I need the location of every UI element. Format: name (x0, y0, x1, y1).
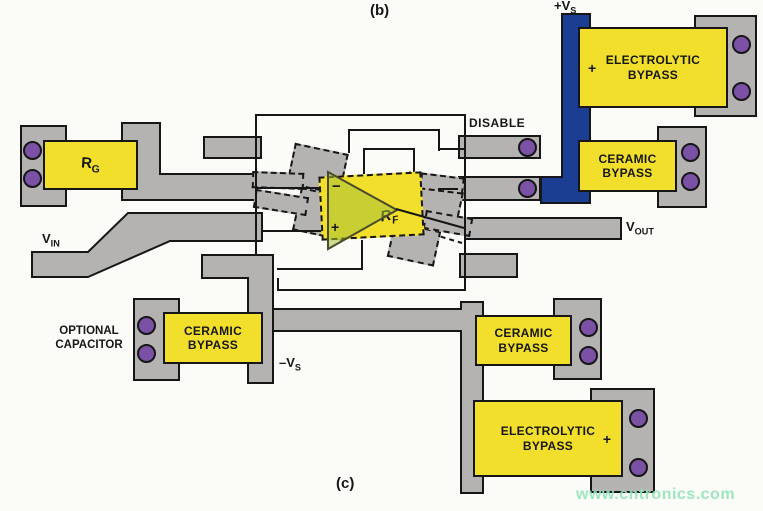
neg-supply-label: –VS (279, 355, 301, 373)
electrolytic-bypass-bottom-label: ELECTROLYTICBYPASS (501, 424, 596, 453)
pad-hole (518, 179, 537, 198)
wire-plus-drop (361, 240, 363, 270)
wire-bottom (277, 289, 464, 291)
vin-trace (32, 213, 262, 277)
wire-disable-b-top (363, 148, 415, 150)
wire-pad2-link (438, 188, 458, 190)
panel-label-b: (b) (370, 2, 389, 19)
electrolytic-bypass-top: + ELECTROLYTICBYPASS (578, 27, 728, 108)
vout-trace (464, 217, 622, 240)
pad-hole (137, 316, 156, 335)
panel-label-c: (c) (336, 475, 354, 492)
wire-top (255, 114, 466, 116)
rg-resistor: RG (43, 140, 138, 190)
electrolytic-bypass-top-label: ELECTROLYTICBYPASS (606, 53, 701, 82)
neg-supply-bus-trace (273, 302, 483, 493)
pad-hole (579, 318, 598, 337)
ceramic-bypass-right: CERAMICBYPASS (475, 315, 572, 366)
wire-bottom-left-drop (277, 278, 279, 291)
ceramic-bypass-top-label: CERAMICBYPASS (598, 152, 656, 181)
rg-label: RG (80, 154, 100, 175)
pos-supply-label: +VS (554, 0, 576, 16)
pad-hole (681, 172, 700, 191)
wire-disable-a-top (348, 129, 440, 131)
ceramic-bypass-top: CERAMICBYPASS (578, 140, 677, 192)
wire-disable-a-left (348, 129, 350, 153)
pcb-layout-diagram: RF − + RG + ELECTROLYTICBYPASS CERAMICBY… (0, 0, 763, 511)
pad-hole (629, 409, 648, 428)
polarity-plus: + (588, 60, 596, 76)
pad-hole (732, 35, 751, 54)
wire-plus-return (277, 268, 363, 270)
electrolytic-bypass-bottom: ELECTROLYTICBYPASS + (473, 400, 623, 477)
disable-label: DISABLE (469, 116, 525, 130)
rg-output-trace (122, 123, 256, 200)
stub-pad-below-vout (459, 253, 518, 278)
pad-hole (732, 82, 751, 101)
ceramic-bypass-left-label: CERAMICBYPASS (184, 324, 242, 353)
pad-hole (579, 346, 598, 365)
wire-right (464, 114, 466, 291)
polarity-plus: + (603, 431, 611, 447)
pad-hole (681, 143, 700, 162)
watermark: www.cntronics.com (576, 486, 735, 504)
ceramic-bypass-right-label: CERAMICBYPASS (494, 326, 552, 355)
vout-label: VOUT (626, 219, 654, 237)
pad-hole (23, 141, 42, 160)
opamp-plus-sign: + (331, 219, 339, 235)
optional-capacitor-label: OPTIONALCAPACITOR (46, 325, 132, 353)
opamp-minus-sign: − (332, 178, 341, 195)
pad-hole (518, 138, 537, 157)
vin-label: VIN (42, 231, 60, 249)
pad-hole (629, 458, 648, 477)
wire-left (255, 114, 257, 256)
pad-hole (23, 169, 42, 188)
ceramic-bypass-left: CERAMICBYPASS (163, 312, 263, 364)
rf-label: RF (379, 206, 399, 229)
wire-disable-b-left (363, 148, 365, 174)
pad-hole (137, 344, 156, 363)
wire-disable-link (440, 148, 464, 150)
stub-pad-upper-left (203, 136, 262, 159)
